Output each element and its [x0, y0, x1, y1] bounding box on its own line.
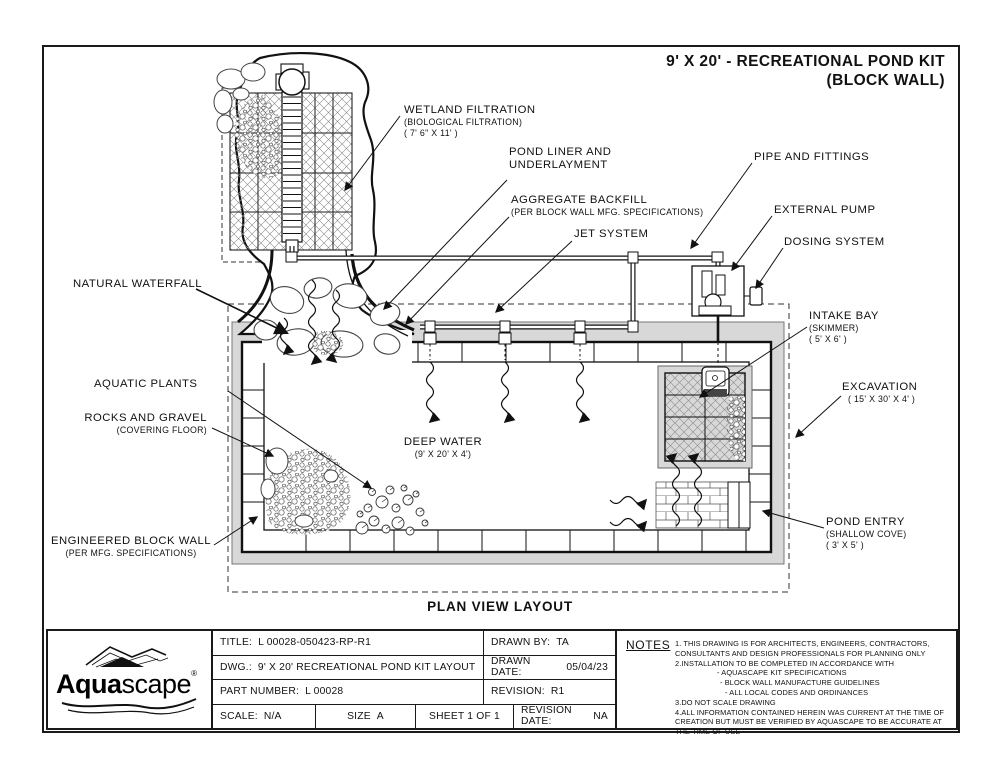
callout-natural-waterfall: NATURAL WATERFALL	[73, 278, 202, 291]
callout-sub: ( 7' 6" X 11' )	[404, 128, 536, 139]
callout-sub: (SHALLOW COVE)	[826, 529, 906, 540]
callout-label: ROCKS AND GRAVEL	[83, 412, 207, 425]
callout-label: DEEP WATER	[363, 436, 523, 449]
callout-wetland-filtration: WETLAND FILTRATION (BIOLOGICAL FILTRATIO…	[404, 104, 536, 139]
callout-sub: ( 15' X 30' X 4' )	[848, 394, 917, 405]
callout-label: NATURAL WATERFALL	[73, 278, 202, 291]
field-label: REVISION:	[491, 686, 545, 697]
note-line: - BLOCK WALL MANUFACTURE GUIDELINES	[720, 678, 952, 688]
callout-pipe-and-fittings: PIPE AND FITTINGS	[754, 151, 869, 164]
callout-label: EXTERNAL PUMP	[774, 204, 876, 217]
drawn-by-cell: DRAWN BY: TA	[484, 631, 615, 655]
callout-label: JET SYSTEM	[574, 228, 648, 241]
field-label: SCALE:	[220, 711, 258, 722]
field-value: 9' X 20' RECREATIONAL POND KIT LAYOUT	[258, 662, 476, 673]
drawing-sheet: 9' X 20' - RECREATIONAL POND KIT (BLOCK …	[0, 0, 1000, 773]
title-block: Aquascape® TITLE: L 00028-050423-RP-R1 D…	[46, 629, 958, 730]
field-label: DWG.:	[220, 662, 252, 673]
field-value: N/A	[264, 711, 282, 722]
title-cell: TITLE: L 00028-050423-RP-R1	[213, 631, 484, 655]
table-row: DWG.: 9' X 20' RECREATIONAL POND KIT LAY…	[213, 656, 615, 681]
scale-cell: SCALE: N/A	[213, 705, 316, 729]
note-line: CREATION BUT MUST BE VERIFIED BY AQUASCA…	[675, 717, 952, 737]
logo-text-bold: Aqua	[56, 669, 122, 699]
table-row: PART NUMBER: L 00028 REVISION: R1	[213, 680, 615, 705]
callout-pond-liner: POND LINER AND UNDERLAYMENT	[509, 146, 611, 172]
callout-external-pump: EXTERNAL PUMP	[774, 204, 876, 217]
callout-label: DOSING SYSTEM	[784, 236, 885, 249]
callout-sub: ( 3' X 5' )	[826, 540, 906, 551]
field-value: TA	[556, 637, 569, 648]
callout-pond-entry: POND ENTRY (SHALLOW COVE) ( 3' X 5' )	[826, 516, 906, 551]
plan-caption: PLAN VIEW LAYOUT	[380, 599, 620, 614]
registered-mark: ®	[191, 669, 196, 678]
note-line: - ALL LOCAL CODES AND ORDINANCES	[725, 688, 952, 698]
field-label: DRAWN BY:	[491, 637, 550, 648]
field-label: PART NUMBER:	[220, 686, 299, 697]
callout-intake-bay: INTAKE BAY (SKIMMER) ( 5' X 6' )	[809, 310, 879, 345]
part-number-cell: PART NUMBER: L 00028	[213, 680, 484, 704]
field-value: SHEET 1 OF 1	[429, 711, 500, 722]
notes-panel: NOTES 1. THIS DRAWING IS FOR ARCHITECTS,…	[617, 631, 956, 728]
field-value: L 00028-050423-RP-R1	[258, 637, 371, 648]
logo-cell: Aquascape®	[48, 631, 213, 728]
field-value: 05/04/23	[566, 662, 608, 673]
callout-sub: (SKIMMER)	[809, 323, 879, 334]
drawing-title-line1: 9' X 20' - RECREATIONAL POND KIT	[666, 52, 945, 71]
callout-label: EXCAVATION	[842, 381, 917, 394]
callout-aggregate-backfill: AGGREGATE BACKFILL (PER BLOCK WALL MFG. …	[511, 194, 703, 218]
callout-excavation: EXCAVATION ( 15' X 30' X 4' )	[842, 381, 917, 405]
callout-dosing-system: DOSING SYSTEM	[784, 236, 885, 249]
callout-label: ENGINEERED BLOCK WALL	[50, 535, 212, 548]
callout-sub: (PER BLOCK WALL MFG. SPECIFICATIONS)	[511, 207, 703, 218]
callout-sub: (PER MFG. SPECIFICATIONS)	[50, 548, 212, 559]
callout-sub: ( 5' X 6' )	[809, 334, 879, 345]
notes-header: NOTES	[626, 638, 670, 652]
note-line: - AQUASCAPE KIT SPECIFICATIONS	[717, 668, 952, 678]
callout-label: PIPE AND FITTINGS	[754, 151, 869, 164]
callout-label: WETLAND FILTRATION	[404, 104, 536, 117]
callout-sub: (9' X 20' X 4')	[363, 449, 523, 460]
notes-body: 1. THIS DRAWING IS FOR ARCHITECTS, ENGIN…	[675, 639, 952, 737]
title-block-table: TITLE: L 00028-050423-RP-R1 DRAWN BY: TA…	[213, 631, 617, 728]
note-line: CONSULTANTS AND DESIGN PROFESSIONALS FOR…	[675, 649, 952, 659]
callout-label: POND ENTRY	[826, 516, 906, 529]
callout-jet-system: JET SYSTEM	[574, 228, 648, 241]
revision-date-cell: REVISION DATE: NA	[514, 705, 615, 729]
callout-sub: (BIOLOGICAL FILTRATION)	[404, 117, 536, 128]
drawn-date-cell: DRAWN DATE: 05/04/23	[484, 656, 615, 680]
revision-cell: REVISION: R1	[484, 680, 615, 704]
callout-deep-water: DEEP WATER (9' X 20' X 4')	[363, 436, 523, 460]
sheet-cell: SHEET 1 OF 1	[416, 705, 514, 729]
drawing-title: 9' X 20' - RECREATIONAL POND KIT (BLOCK …	[666, 52, 945, 90]
drawing-title-line2: (BLOCK WALL)	[666, 71, 945, 90]
callout-label: POND LINER AND	[509, 146, 611, 159]
note-line: 1. THIS DRAWING IS FOR ARCHITECTS, ENGIN…	[675, 639, 952, 649]
logo-wordmark: Aquascape®	[56, 669, 196, 700]
field-value: NA	[593, 711, 608, 722]
table-row: SCALE: N/A SIZE A SHEET 1 OF 1 REVISION …	[213, 705, 615, 729]
field-value: R1	[551, 686, 565, 697]
callout-label: AQUATIC PLANTS	[94, 378, 197, 391]
callout-aquatic-plants: AQUATIC PLANTS	[94, 378, 197, 391]
field-label: REVISION DATE:	[521, 705, 587, 727]
callout-label: AGGREGATE BACKFILL	[511, 194, 703, 207]
field-value: L 00028	[305, 686, 343, 697]
note-line: 4.ALL INFORMATION CONTAINED HEREIN WAS C…	[675, 708, 952, 718]
field-label: SIZE	[347, 711, 371, 722]
callout-engineered-block-wall: ENGINEERED BLOCK WALL (PER MFG. SPECIFIC…	[50, 535, 212, 559]
note-line: 2.INSTALLATION TO BE COMPLETED IN ACCORD…	[675, 659, 952, 669]
table-row: TITLE: L 00028-050423-RP-R1 DRAWN BY: TA	[213, 631, 615, 656]
logo-text: scape	[122, 669, 192, 699]
field-value: A	[377, 711, 384, 722]
callout-label: INTAKE BAY	[809, 310, 879, 323]
note-line: 3.DO NOT SCALE DRAWING	[675, 698, 952, 708]
field-label: TITLE:	[220, 637, 252, 648]
size-cell: SIZE A	[316, 705, 416, 729]
field-label: DRAWN DATE:	[491, 656, 560, 678]
callout-label: UNDERLAYMENT	[509, 159, 611, 172]
dwg-cell: DWG.: 9' X 20' RECREATIONAL POND KIT LAY…	[213, 656, 484, 680]
callout-sub: (COVERING FLOOR)	[83, 425, 207, 436]
callout-rocks-and-gravel: ROCKS AND GRAVEL (COVERING FLOOR)	[83, 412, 207, 436]
